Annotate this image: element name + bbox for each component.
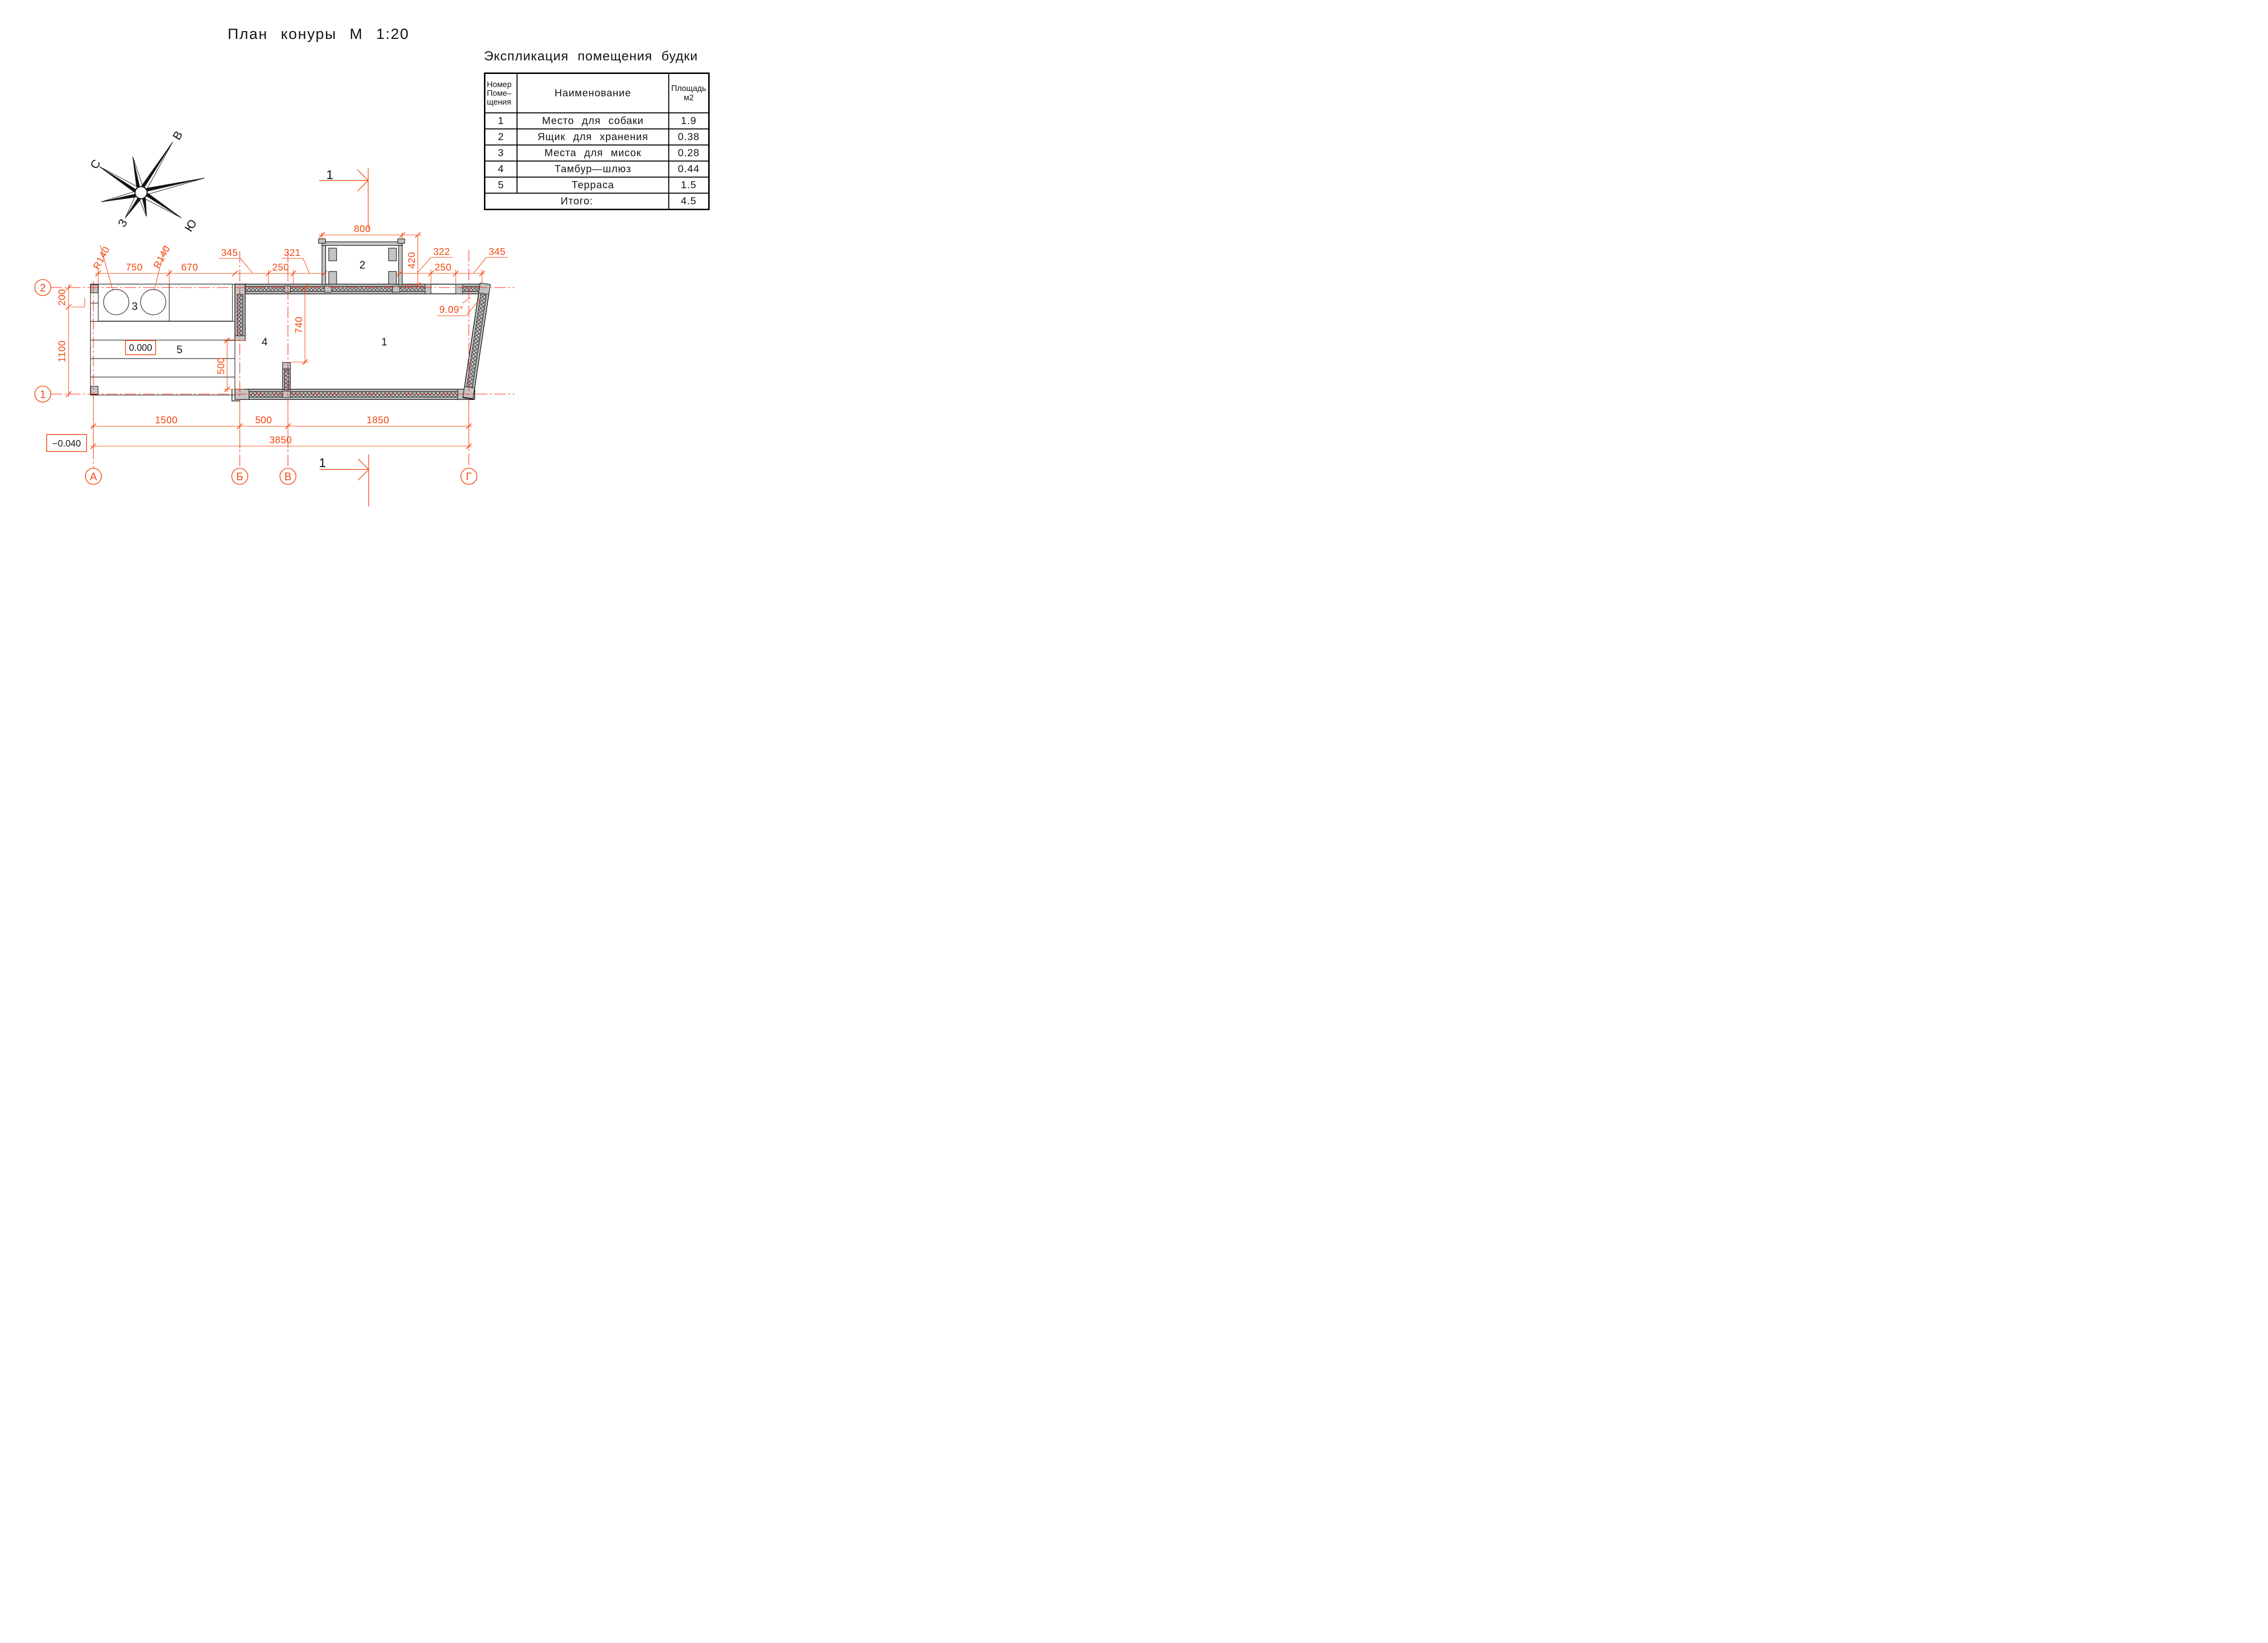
level-minus: −0.040 <box>53 439 81 449</box>
axis-1-bubble: 1 <box>40 388 46 400</box>
dim-200: 200 <box>57 289 68 306</box>
box-stud <box>329 271 337 284</box>
partition-stub <box>283 362 290 390</box>
compass-rose: С В З Ю <box>83 116 213 243</box>
wall-stud <box>393 286 400 292</box>
level-zero: 0.000 <box>129 343 152 353</box>
room-4-label: 4 <box>262 336 268 348</box>
dim-r140-a: R140 <box>91 245 112 271</box>
angle-label: 9.09° <box>439 305 463 315</box>
dim-420: 420 <box>407 252 417 269</box>
terrace <box>90 284 235 395</box>
section-1-top-label: 1 <box>326 167 333 182</box>
slanted-wall <box>463 283 490 399</box>
dim-750: 750 <box>126 262 143 273</box>
dim-500-door: 500 <box>216 358 227 375</box>
dim-345-right: 345 <box>489 247 506 257</box>
dim-800: 800 <box>354 224 371 235</box>
opening-jamb <box>456 284 463 294</box>
dim-345-left: 345 <box>221 248 238 258</box>
corner-post <box>479 283 490 294</box>
floor-plan-svg: С В З Ю <box>0 0 763 552</box>
dim-r140-b: R140 <box>152 244 173 270</box>
compass-west-label: З <box>115 217 130 230</box>
bowl-area <box>98 284 232 321</box>
box-stud <box>389 248 396 261</box>
room-2-label: 2 <box>359 259 365 271</box>
axis-a-bubble: А <box>90 470 97 483</box>
terrace-post <box>91 386 98 395</box>
terrace-post <box>91 285 98 293</box>
box-tab <box>398 239 405 243</box>
dim-740: 740 <box>294 317 304 334</box>
room-1-label: 1 <box>381 336 387 348</box>
box-stud <box>389 271 396 284</box>
top-wall-opening <box>431 285 456 293</box>
dim-1850: 1850 <box>367 415 390 426</box>
compass-south-label: Ю <box>182 217 200 234</box>
axis-b-bubble: Б <box>236 470 243 483</box>
section-1-bottom-label: 1 <box>319 455 326 470</box>
dim-321: 321 <box>284 248 301 258</box>
dim-3850: 3850 <box>269 435 292 446</box>
wall-stud <box>285 286 290 292</box>
wall-stud <box>324 286 332 292</box>
axis-2-bubble: 2 <box>40 282 46 294</box>
axis-g-bubble: Г <box>466 470 472 483</box>
opening-jamb <box>425 284 431 294</box>
drawing-sheet: План конуры М 1:20 Экспликация помещения… <box>0 0 763 552</box>
dim-1500: 1500 <box>155 415 178 426</box>
section-markers <box>319 168 369 506</box>
room-3-label: 3 <box>132 300 138 312</box>
room-5-label: 5 <box>177 343 182 356</box>
compass-east-label: В <box>170 129 185 143</box>
wall-stud <box>283 362 290 369</box>
dim-322: 322 <box>433 247 450 257</box>
box-stud <box>329 248 337 261</box>
dim-500: 500 <box>255 415 272 426</box>
axis-v-bubble: В <box>285 470 292 483</box>
compass-north-label: С <box>88 157 104 171</box>
dim-1100: 1100 <box>57 340 68 362</box>
dim-250-left: 250 <box>272 262 289 273</box>
dim-670: 670 <box>181 262 198 273</box>
dim-250-right: 250 <box>435 262 452 273</box>
